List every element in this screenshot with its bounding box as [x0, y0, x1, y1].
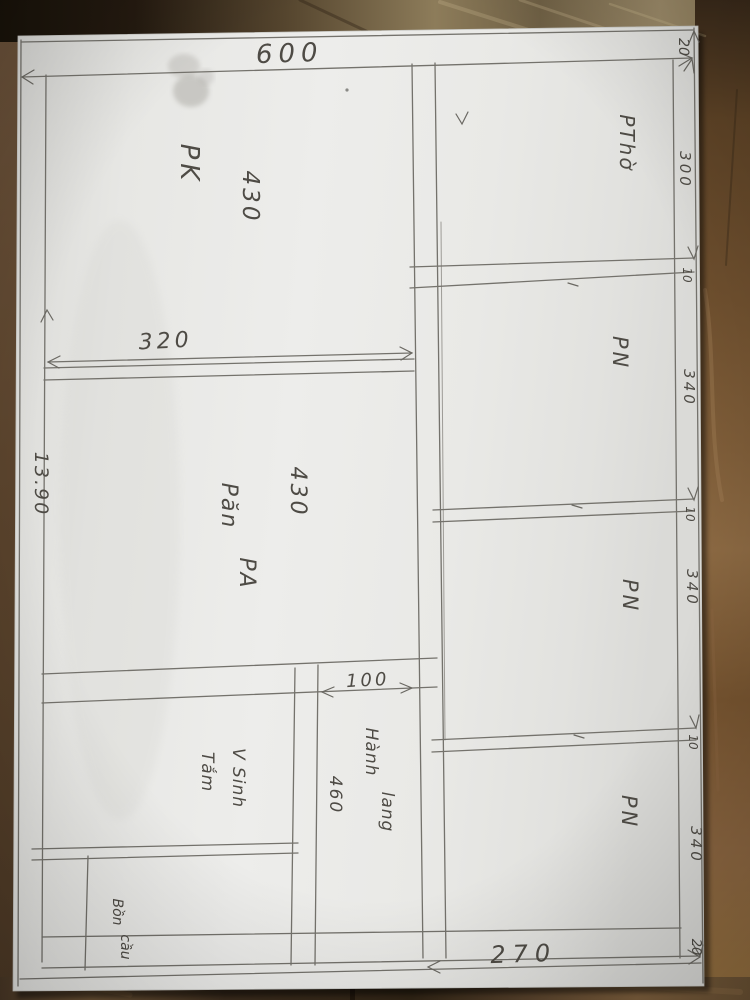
- photo-of-floor-plan-sketch: 600 320 100 270 20 300 10 340 10 340 10 …: [0, 0, 750, 1000]
- floor-plan-scene: 600 320 100 270 20 300 10 340 10 340 10 …: [0, 0, 750, 1000]
- photo-vignette: [0, 0, 750, 1000]
